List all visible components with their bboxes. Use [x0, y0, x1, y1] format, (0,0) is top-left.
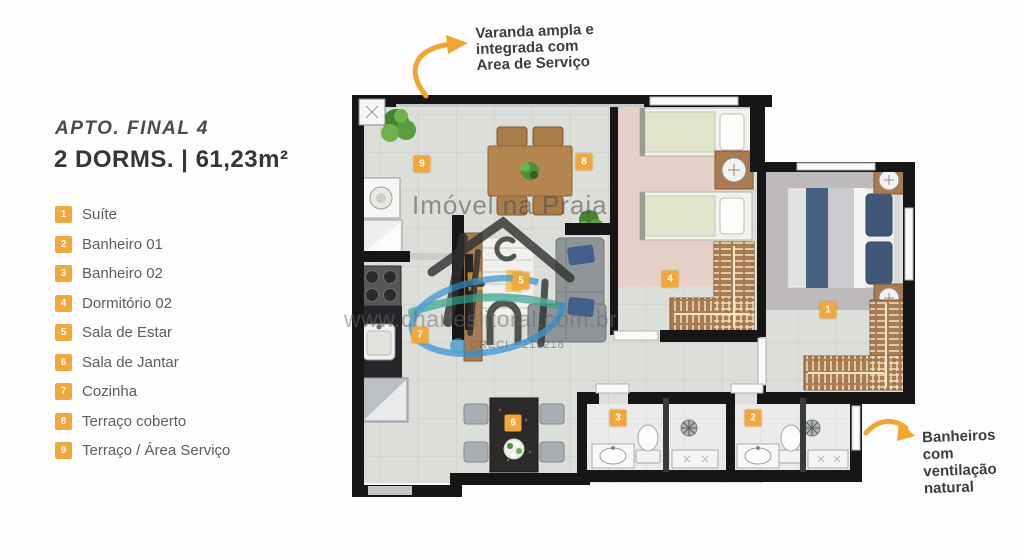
door-leaf-bath02 [596, 384, 629, 393]
room-marker-5: 5 [513, 273, 530, 290]
legend-label: Banheiro 02 [82, 265, 163, 282]
note-varanda: Varanda ampla e integrada com Area de Se… [475, 22, 595, 74]
door-leaf-dorm2 [614, 331, 658, 340]
note-line: ventilação [923, 461, 997, 481]
legend-badge: 9 [55, 442, 72, 459]
apartment-specs: 2 DORMS. | 61,23m² [54, 146, 288, 174]
ac-box-icon [359, 99, 385, 125]
fridge-icon [362, 378, 408, 422]
watermark-brand: Imóvel na Praia [412, 190, 608, 221]
legend-badge: 3 [55, 265, 72, 282]
centerpiece-flowers-icon [504, 439, 524, 459]
legend-badge: 8 [55, 413, 72, 430]
watermark-site: www.charleslitoral.com.br [344, 306, 617, 333]
room-marker-9: 9 [414, 156, 431, 173]
legend-badge: 5 [55, 324, 72, 341]
legend-item-sala-de-estar: 5 Sala de Estar [55, 324, 230, 341]
legend-item-terraco-coberto: 8 Terraço coberto [55, 413, 230, 430]
legend-item-terraco-area-servico: 9 Terraço / Área Serviço [55, 442, 230, 459]
room-marker-4: 4 [662, 271, 679, 288]
room-marker-6: 6 [505, 415, 522, 432]
stove-icon [361, 266, 401, 306]
note-line: natural [924, 478, 998, 498]
legend-item-banheiro-02: 3 Banheiro 02 [55, 265, 230, 282]
apartment-title: APTO. FINAL 4 [55, 118, 209, 140]
legend-item-dormitorio-02: 4 Dormitório 02 [55, 295, 230, 312]
creci-logo-icon [450, 338, 466, 354]
legend-badge: 2 [55, 236, 72, 253]
legend-label: Sala de Estar [82, 324, 172, 341]
toilet-icon [779, 425, 803, 463]
legend-item-suite: 1 Suíte [55, 206, 230, 223]
single-bed-2-icon [640, 192, 752, 240]
note-banheiros: Banheiros com ventilação natural [922, 427, 998, 498]
room-marker-2: 2 [745, 410, 762, 427]
double-bed-icon [788, 188, 900, 288]
single-bed-1-icon [640, 108, 752, 156]
floorplan-page: APTO. FINAL 4 2 DORMS. | 61,23m² 1 Suíte… [0, 0, 1024, 560]
room-legend: 1 Suíte 2 Banheiro 01 3 Banheiro 02 4 Do… [55, 206, 230, 459]
toilet-icon [636, 425, 660, 463]
legend-label: Terraço / Área Serviço [82, 442, 230, 459]
suite-furniture [788, 166, 904, 390]
room-marker-3: 3 [610, 410, 627, 427]
legend-badge: 7 [55, 383, 72, 400]
note-line: Banheiros [922, 427, 996, 447]
legend-label: Sala de Jantar [82, 354, 179, 371]
legend-label: Cozinha [82, 383, 137, 400]
legend-label: Banheiro 01 [82, 236, 163, 253]
door-leaf-bath01 [731, 384, 763, 393]
legend-badge: 1 [55, 206, 72, 223]
varanda-arrow-icon [415, 44, 450, 96]
legend-item-banheiro-01: 2 Banheiro 01 [55, 236, 230, 253]
room-marker-8: 8 [576, 154, 593, 171]
legend-item-sala-de-jantar: 6 Sala de Jantar [55, 354, 230, 371]
dining-table-icon [490, 398, 538, 472]
legend-label: Dormitório 02 [82, 295, 172, 312]
legend-item-cozinha: 7 Cozinha [55, 383, 230, 400]
door-leaf-suite [758, 338, 766, 385]
laundry-sink-icon [362, 178, 402, 254]
legend-label: Suíte [82, 206, 117, 223]
room-marker-7: 7 [412, 327, 429, 344]
legend-badge: 6 [55, 354, 72, 371]
watermark-creci: CRECI - 219218 [470, 339, 565, 351]
legend-label: Terraço coberto [82, 413, 186, 430]
dorm2-nightstand-icon [715, 151, 753, 189]
kitchen-furniture [357, 266, 408, 422]
legend-badge: 4 [55, 295, 72, 312]
room-marker-1: 1 [820, 302, 837, 319]
